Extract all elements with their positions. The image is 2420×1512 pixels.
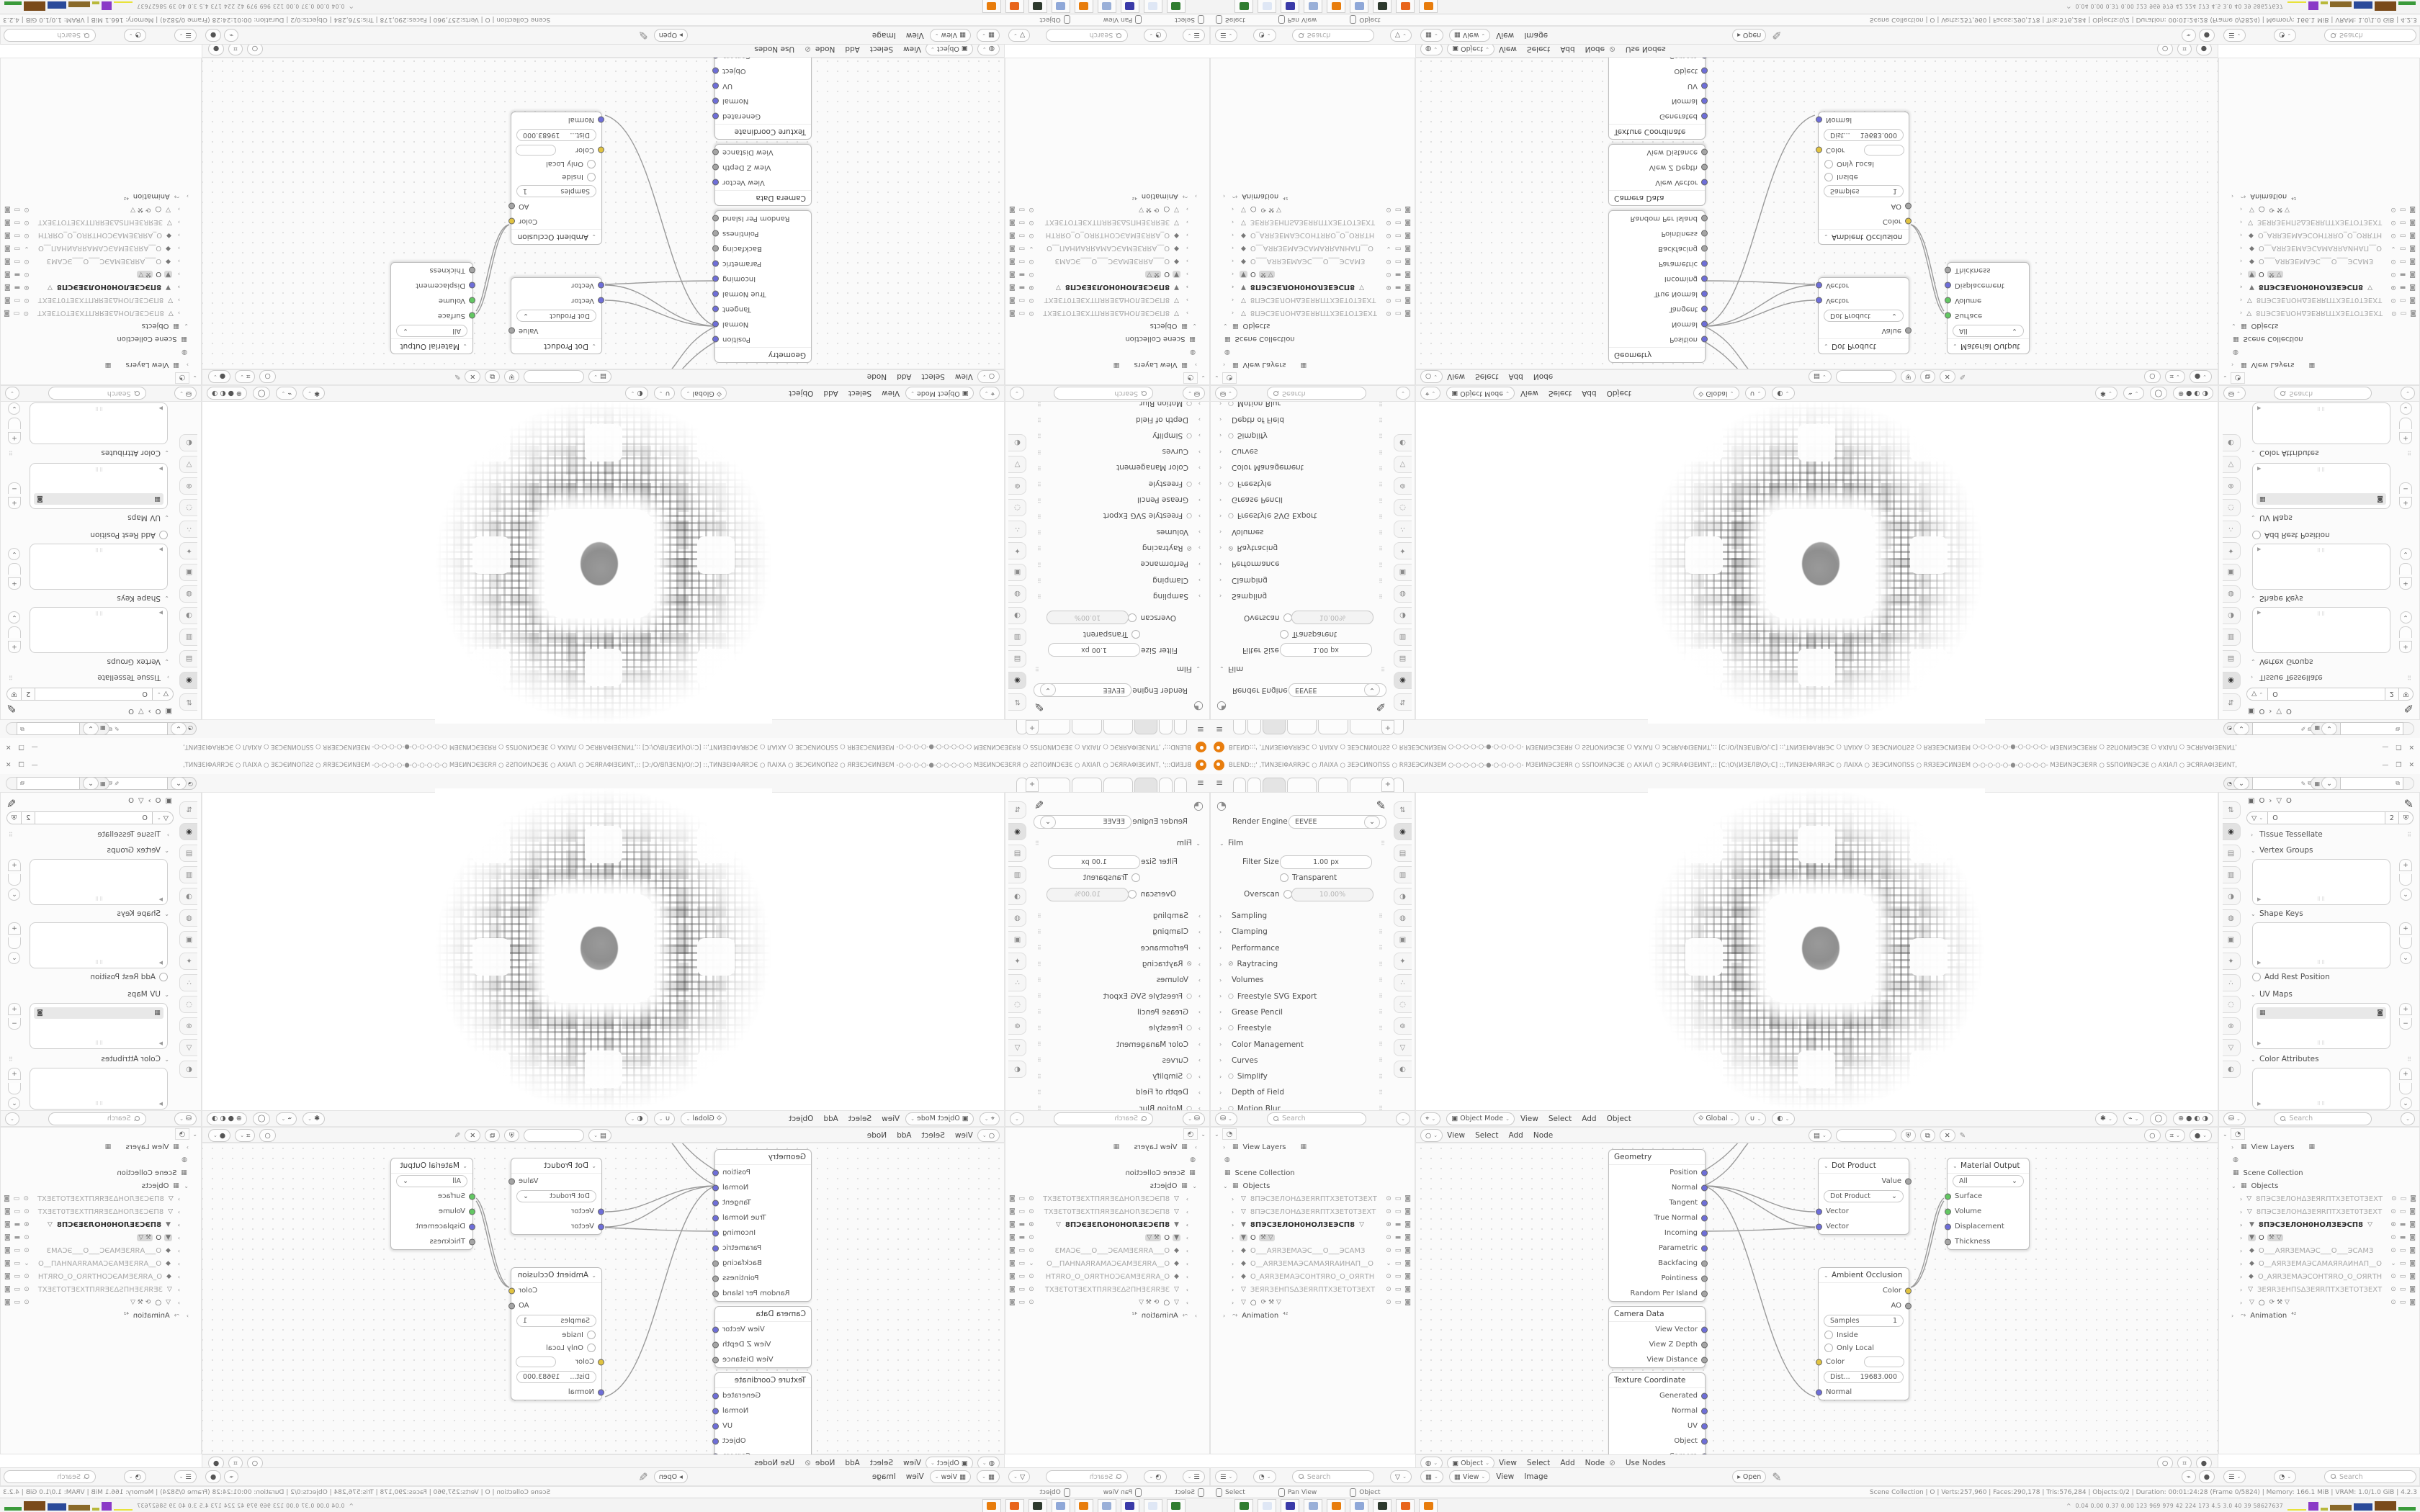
- properties-tab-icon[interactable]: ▥: [1394, 866, 1412, 883]
- menu-item[interactable]: Node: [1585, 1459, 1605, 1467]
- properties-tab-icon[interactable]: ✦: [2223, 953, 2241, 970]
- shading-mode-icon[interactable]: ●: [2186, 1115, 2192, 1122]
- node-input-socket[interactable]: Color: [1819, 143, 1909, 158]
- collapsed-panel-row[interactable]: ›Depth of Field ⠿: [1211, 411, 1391, 427]
- collapsed-panel-row[interactable]: ›Curves ⠿: [1211, 444, 1391, 459]
- view-layers-row[interactable]: ›▦View Layers▦: [2228, 359, 2419, 372]
- material-name-field[interactable]: [1836, 370, 1896, 383]
- socket-dot[interactable]: [1701, 83, 1708, 89]
- taskbar-app-button[interactable]: [1075, 1499, 1093, 1512]
- node-output-socket[interactable]: UV: [1609, 1418, 1705, 1434]
- pin-icon[interactable]: ✎: [454, 373, 460, 381]
- taskbar-app-button[interactable]: [1373, 0, 1391, 14]
- view-layers-row[interactable]: ›▦View Layers▦: [2228, 1140, 2419, 1153]
- hide-eye-icon[interactable]: ⊙: [24, 271, 30, 278]
- workspace-tab[interactable]: [1287, 720, 1317, 734]
- outliner-object-row[interactable]: ›▽ 8ПЭСЗЕЛОНΔЗЕЯRПТХЗЕТ0ТЗЕХТ ⊙▭◙: [1, 294, 184, 307]
- render-visibility-icon[interactable]: ◙: [1009, 297, 1016, 304]
- properties-tab-icon[interactable]: ◍: [1009, 909, 1027, 927]
- properties-tab-icon[interactable]: ▣: [1009, 564, 1027, 581]
- outliner-object-row[interactable]: ›▽ ЗЕЯRЗЕНПSΔЗЕЯRПТХЗЕТОТЗЕХТ ⊙▭◙: [2236, 216, 2419, 229]
- node-output-socket[interactable]: Generated: [1609, 1388, 1705, 1403]
- properties-tab-icon[interactable]: ▣: [180, 564, 198, 581]
- collapsed-panel-row[interactable]: ›Color Management ⠿: [1029, 459, 1209, 475]
- vertex-groups-section[interactable]: ⌄Vertex Groups: [2251, 657, 2313, 666]
- collapsed-panel-row[interactable]: ›Volumes ⠿: [1211, 972, 1391, 988]
- properties-tab-icon[interactable]: ◉: [180, 672, 198, 689]
- world-row[interactable]: ◍: [1005, 1153, 1201, 1166]
- properties-tab-icon[interactable]: ◍: [180, 585, 198, 603]
- viewport-visibility-icon[interactable]: ▭: [14, 232, 21, 239]
- hide-eye-icon[interactable]: ⊙: [2390, 1208, 2396, 1215]
- taskbar-app-button[interactable]: [1121, 0, 1139, 14]
- shape-keys-section[interactable]: ⌄Shape Keys: [117, 594, 169, 603]
- taskbar-app-button[interactable]: [1144, 0, 1162, 14]
- node-output-socket[interactable]: Normal: [1609, 1403, 1705, 1418]
- node-ambient-occlusion[interactable]: ⌄Ambient Occlusion Color AO Samples1 Ins…: [1818, 112, 1909, 245]
- uv-maps-list[interactable]: ▦ ◙ ▶⠿⠿: [2252, 1003, 2390, 1049]
- add-workspace-button[interactable]: +: [1026, 777, 1039, 792]
- workspace-tab[interactable]: [1287, 778, 1317, 792]
- filter-size-field[interactable]: 1.00 px: [1048, 643, 1140, 657]
- header-toggle-button[interactable]: ●: [205, 29, 221, 42]
- node-output-socket[interactable]: Tangent: [1609, 1195, 1705, 1210]
- viewport-visibility-icon[interactable]: ▭: [14, 1273, 21, 1280]
- hide-eye-icon[interactable]: ⊙: [1386, 1234, 1391, 1241]
- viewport-visibility-icon[interactable]: ▭: [2400, 1208, 2406, 1215]
- display-mode-button[interactable]: ☰⌄: [1183, 29, 1205, 42]
- menu-item[interactable]: Add: [1560, 1459, 1574, 1467]
- node-output-socket[interactable]: Position: [1609, 332, 1705, 347]
- shading-mode-switch[interactable]: ⊕●◐◑: [207, 1112, 247, 1125]
- properties-tab-icon[interactable]: ◍: [1394, 585, 1412, 603]
- view-mode-dropdown[interactable]: ▦ View⌄: [930, 1470, 971, 1483]
- socket-dot[interactable]: [1701, 1392, 1708, 1399]
- viewport-visibility-icon[interactable]: ▭: [1395, 258, 1402, 265]
- node-output-socket[interactable]: Value: [511, 1174, 601, 1189]
- outliner-object-row[interactable]: ›▼ O⚒ ▽ ⊙▬◙: [2236, 268, 2419, 281]
- snap-toggle[interactable]: ∪⌄: [1745, 1112, 1767, 1125]
- properties-tab-icon[interactable]: ▣: [1394, 564, 1412, 581]
- remove-button[interactable]: [8, 563, 21, 575]
- node-output-socket[interactable]: Object: [1609, 1434, 1705, 1449]
- world-row[interactable]: ◍: [1219, 346, 1415, 359]
- animation-row[interactable]: ›⤳Animation⁴²: [1219, 1309, 1415, 1322]
- properties-tab-icon[interactable]: ◉: [180, 823, 198, 840]
- collapsed-panel-row[interactable]: ›Performance ⠿: [1029, 940, 1209, 956]
- edit-pencil-icon[interactable]: ✎: [1772, 1470, 1781, 1484]
- properties-tab-icon[interactable]: ▽: [2223, 1039, 2241, 1056]
- view-layers-row[interactable]: ›▦View Layers▦: [1219, 1140, 1415, 1153]
- color-swatch[interactable]: [1864, 145, 1904, 156]
- scene-collection-row[interactable]: ▦Scene Collection: [1219, 1166, 1415, 1179]
- outliner-object-row[interactable]: ›◆ О__АЯRЗЕМАЭСАМАЯRАИНАП__О ⌄▭◙: [2236, 1257, 2419, 1270]
- outliner-object-row[interactable]: ›◆ О__АЯRЗЕМАЭСАМАЯRАИНАП__О ⌄▭◙: [1005, 242, 1192, 255]
- outliner-object-row[interactable]: ›◆ О_АЯRЗЕМАЭСОНТЯRО_О_ОЯRТН ⊙▭◙: [1005, 1270, 1192, 1283]
- node-input-socket[interactable]: Color: [511, 143, 601, 158]
- collapsed-panel-row[interactable]: ›Clamping ⠿: [1029, 572, 1209, 588]
- animation-row[interactable]: ›⤳Animation⁴²: [1219, 190, 1415, 203]
- node-output-socket[interactable]: Value: [511, 323, 601, 338]
- outliner-object-row[interactable]: ›▽ 8ПЭСЗЕЛОНΔЗЕЯRПТХЗЕТОТЗЕХТ ⊙▭◙: [2236, 307, 2419, 320]
- socket-dot[interactable]: [712, 83, 719, 89]
- world-row[interactable]: ◍: [1219, 1153, 1415, 1166]
- properties-tab-icon[interactable]: ◍: [1394, 909, 1412, 927]
- properties-tab-icon[interactable]: ◐: [180, 1061, 198, 1078]
- header-toggle-button[interactable]: ●: [2199, 29, 2215, 42]
- socket-dot[interactable]: [1701, 1260, 1708, 1266]
- collapsed-panel-row[interactable]: ›○Freestyle ⠿: [1029, 1020, 1209, 1036]
- taskbar-app-button[interactable]: [982, 0, 1001, 14]
- viewport-visibility-icon[interactable]: ▭: [2400, 245, 2406, 252]
- menu-item[interactable]: Node: [1533, 372, 1553, 381]
- properties-tab-icon[interactable]: ▣: [180, 931, 198, 948]
- node-output-socket[interactable]: Parametric: [1609, 256, 1705, 271]
- vertex-groups-section[interactable]: ⌄Vertex Groups: [107, 846, 169, 855]
- remove-button[interactable]: [8, 418, 21, 429]
- collapsed-panel-row[interactable]: ›Depth of Field ⠿: [1029, 1084, 1209, 1100]
- outliner-object-row[interactable]: ›◆ О_АЯRЗЕМАЭСОНТЯRО_О_ОЯRТН ⊙▭◙: [2236, 1270, 2419, 1283]
- node-output-socket[interactable]: Random Per Island: [1609, 211, 1705, 226]
- render-visibility-icon[interactable]: ◙: [4, 1195, 10, 1202]
- xray-toggle[interactable]: ○: [2144, 370, 2160, 383]
- socket-dot[interactable]: [1701, 261, 1708, 267]
- add-button[interactable]: +: [8, 497, 21, 509]
- editor-type-button[interactable]: ⌖⌄: [980, 387, 1000, 400]
- editor-type-button[interactable]: ▦⌄: [977, 29, 1000, 42]
- node-input-socket[interactable]: Displacement: [391, 1219, 472, 1234]
- properties-tab-icon[interactable]: ◉: [1009, 823, 1027, 840]
- node-material-output[interactable]: ⌄Material Output All⌄ Surface Volume Dis…: [390, 262, 473, 354]
- display-mode-button[interactable]: ☰⌄: [2223, 29, 2246, 42]
- transparent-checkbox[interactable]: Transparent: [1280, 873, 1337, 882]
- copy-material-button[interactable]: ⧉: [485, 1129, 500, 1142]
- add-button[interactable]: +: [2399, 1003, 2412, 1015]
- search-input[interactable]: Search: [1054, 1112, 1153, 1125]
- render-visibility-icon[interactable]: ◙: [1404, 1273, 1411, 1280]
- socket-dot[interactable]: [598, 282, 604, 289]
- overscan-field[interactable]: 10.00%: [1291, 888, 1373, 901]
- outliner-object-row[interactable]: ›▼ O⚒ ▽ ⊙▬◙: [1005, 1231, 1192, 1244]
- properties-tab-icon[interactable]: ◌: [180, 499, 198, 516]
- menu-item[interactable]: Select: [870, 1459, 893, 1467]
- hide-eye-icon[interactable]: ⊙: [1028, 1221, 1034, 1228]
- outliner-object-row[interactable]: ›▽ 8ПЭСЗЕЛОНΔЗЕЯRПТХЗЕТОТЗЕХТ ⊙▭◙: [1228, 307, 1415, 320]
- properties-tab-icon[interactable]: ⇅: [180, 693, 198, 711]
- socket-dot[interactable]: [712, 261, 719, 267]
- socket-dot[interactable]: [712, 230, 719, 237]
- render-visibility-icon[interactable]: ◙: [1404, 258, 1411, 265]
- socket-dot[interactable]: [1701, 149, 1708, 156]
- properties-tab-icon[interactable]: ▥: [2223, 629, 2241, 646]
- pin-icon[interactable]: ✎: [115, 780, 120, 787]
- render-visibility-icon[interactable]: ◙: [4, 1208, 11, 1215]
- node-output-socket[interactable]: Backfacing: [1609, 241, 1705, 256]
- properties-tab-icon[interactable]: ▣: [2223, 931, 2241, 948]
- hide-eye-icon[interactable]: ⊙: [1028, 1247, 1034, 1254]
- add-workspace-button[interactable]: +: [1026, 720, 1039, 735]
- taskbar-app-button[interactable]: [1098, 1499, 1116, 1512]
- properties-tab-icon[interactable]: ◌: [2223, 996, 2241, 1013]
- render-visibility-icon[interactable]: ◙: [1009, 1299, 1016, 1306]
- socket-dot[interactable]: [712, 1275, 719, 1282]
- proportional-edit-toggle[interactable]: ◐⌄: [625, 1112, 647, 1125]
- render-visibility-icon[interactable]: ◙: [2410, 310, 2416, 317]
- node-output-socket[interactable]: Normal: [715, 1403, 811, 1418]
- workspace-tab[interactable]: [1134, 720, 1157, 734]
- taskbar-app-button[interactable]: [1350, 0, 1368, 14]
- outliner-object-row[interactable]: ›▼ 8ПЭСЗЕЛОН0НОЛЗЕЭСП8▽ ⊙▬◙: [2236, 281, 2419, 294]
- outliner-object-row[interactable]: ›▼ 8ПЭСЗЕЛОН0НОЛЗЕЭСП8▽ ⊙▬◙: [1005, 1218, 1192, 1231]
- shading-mode-icon[interactable]: ◐: [220, 390, 225, 397]
- hide-eye-icon[interactable]: ⊙: [2390, 1299, 2396, 1306]
- socket-dot[interactable]: [1701, 215, 1708, 222]
- minimize-button[interactable]: —: [2382, 744, 2388, 751]
- hide-eye-icon[interactable]: ⊙: [1028, 1273, 1034, 1280]
- render-visibility-icon[interactable]: ◙: [1404, 284, 1411, 291]
- collapsed-panel-row[interactable]: ›Performance ⠿: [1211, 556, 1391, 572]
- hide-eye-icon[interactable]: ⊙: [1028, 271, 1034, 278]
- app-menu-icon[interactable]: ≡: [1197, 778, 1204, 788]
- outliner-object-row[interactable]: ›▽ ○⟳ ⚒ ▽ ⊙▭◙: [1005, 1296, 1192, 1309]
- properties-tab-icon[interactable]: ▽: [2223, 456, 2241, 473]
- node-output-socket[interactable]: Backfacing: [1609, 1256, 1705, 1271]
- socket-dot[interactable]: [712, 1423, 719, 1429]
- viewport-visibility-icon[interactable]: ▭: [1019, 297, 1026, 304]
- render-visibility-icon[interactable]: ◙: [1404, 1234, 1411, 1241]
- unlink-button[interactable]: ✕: [465, 1129, 480, 1142]
- workspace-tab[interactable]: [1247, 778, 1261, 792]
- target-dropdown[interactable]: All⌄: [391, 1174, 472, 1189]
- node-ambient-occlusion[interactable]: ⌄Ambient Occlusion Color AO Samples1 Ins…: [511, 112, 602, 245]
- filter-button[interactable]: ◔⌄: [1253, 1470, 1276, 1483]
- xray-toggle[interactable]: ○: [2144, 1129, 2160, 1142]
- node-output-socket[interactable]: Generated: [1609, 109, 1705, 124]
- collapsed-panel-row[interactable]: ›Performance ⠿: [1029, 556, 1209, 572]
- render-visibility-icon[interactable]: ◙: [1009, 1286, 1016, 1293]
- collapsed-panel-row[interactable]: ›Sampling ⠿: [1029, 908, 1209, 924]
- viewport-visibility-icon[interactable]: ▭: [2400, 297, 2406, 304]
- socket-dot[interactable]: [1701, 336, 1708, 343]
- shading-mode-icon[interactable]: ◐: [2194, 390, 2200, 397]
- options-dropdown[interactable]: ⌄: [5, 387, 19, 400]
- editor-type-button[interactable]: ⛁⌄: [174, 1112, 197, 1125]
- node-input-socket[interactable]: Normal: [511, 112, 601, 127]
- color-swatch[interactable]: [516, 145, 556, 156]
- render-visibility-icon[interactable]: ◙: [2409, 1221, 2416, 1228]
- viewport-visibility-icon[interactable]: ▬: [1395, 1234, 1402, 1241]
- workspace-tab[interactable]: [1233, 720, 1246, 734]
- hide-eye-icon[interactable]: ⊙: [2391, 310, 2397, 317]
- outliner-object-row[interactable]: ›◆ О_АЯRЗЕМАЭСОНТЯRО_О_ОЯRТН ⊙▭◙: [1228, 1270, 1415, 1283]
- hide-eye-icon[interactable]: ⊙: [23, 1195, 29, 1202]
- properties-tab-icon[interactable]: ◌: [1009, 499, 1027, 516]
- user-count-badge[interactable]: 2: [2385, 811, 2399, 824]
- proportional-edit-toggle[interactable]: ◐⌄: [625, 387, 647, 400]
- properties-tab-icon[interactable]: ⊚: [2223, 477, 2241, 495]
- socket-dot[interactable]: [1701, 1356, 1708, 1363]
- snap-grid-toggle[interactable]: ⌗⌄: [2165, 1129, 2185, 1142]
- node-output-socket[interactable]: Pointiness: [715, 1271, 811, 1286]
- node-output-socket[interactable]: True Normal: [1609, 287, 1705, 302]
- filter-icon[interactable]: ◔: [2231, 372, 2245, 384]
- open-image-button[interactable]: ▸ Open: [1732, 1470, 1766, 1483]
- menu-item[interactable]: View: [1447, 372, 1465, 381]
- socket-dot[interactable]: [598, 1389, 604, 1395]
- node-input-socket[interactable]: Normal: [511, 1385, 601, 1400]
- outliner-object-row[interactable]: ›▼ 8ПЭСЗЕЛОН0НОЛЗЕЭСП8▽ ⊙▬◙: [1228, 1218, 1415, 1231]
- filter-funnel-dropdown[interactable]: ▽⌄: [1390, 1470, 1412, 1483]
- user-count-badge[interactable]: 2: [2385, 688, 2399, 701]
- outliner-object-row[interactable]: ›▽ 8ПЭСЗЕЛОНΔЗЕЯRПТХЗЕТ0ТЗЕХТ ⊙▭◙: [1, 1205, 184, 1218]
- hide-eye-icon[interactable]: ⊙: [1028, 310, 1034, 317]
- viewport-visibility-icon[interactable]: ▭: [14, 1208, 21, 1215]
- search-input[interactable]: Search: [2274, 1112, 2372, 1125]
- view-mode-dropdown[interactable]: ▦ View⌄: [1449, 29, 1490, 42]
- view-layers-row[interactable]: ›▦View Layers▦: [1, 359, 192, 372]
- outliner-object-row[interactable]: ›▽ ЗЕЯRЗЕНПSΔЗЕЯRПТХЗЕТОТЗЕХТ ⊙▭◙: [1005, 1283, 1192, 1296]
- viewport-visibility-icon[interactable]: ▭: [14, 1299, 21, 1306]
- material-icon-dropdown[interactable]: ▤⌄: [588, 370, 611, 383]
- hide-eye-icon[interactable]: ⊙: [24, 1208, 30, 1215]
- properties-tab-icon[interactable]: ▣: [2223, 564, 2241, 581]
- properties-tab-icon[interactable]: ∴: [180, 974, 198, 991]
- outliner-object-row[interactable]: ›◆ О__АЯRЗЕМАЭСАМАЯRАИНАП__О ⌄▭◙: [1228, 1257, 1415, 1270]
- collapsed-panel-row[interactable]: ›Curves ⠿: [1029, 444, 1209, 459]
- snap-toggle[interactable]: ∪⌄: [654, 1112, 676, 1125]
- specials-dropdown[interactable]: ⌄: [9, 888, 21, 901]
- node-output-socket[interactable]: Parametric: [1609, 1241, 1705, 1256]
- taskbar-app-button[interactable]: [1396, 1499, 1415, 1512]
- socket-dot[interactable]: [712, 321, 719, 328]
- collapsed-panel-row[interactable]: ›Sampling ⠿: [1211, 908, 1391, 924]
- viewport-visibility-icon[interactable]: ▬: [2400, 284, 2406, 291]
- maximize-button[interactable]: ❐: [2396, 744, 2401, 751]
- properties-tab-icon[interactable]: ✦: [1009, 953, 1027, 970]
- objects-collection-row[interactable]: ⌄▦Objects: [1005, 1179, 1201, 1192]
- outliner-object-row[interactable]: ›▽ ○⟳ ⚒ ▽ ⊙▭◙: [2236, 203, 2419, 216]
- node-input-socket[interactable]: Color: [1819, 1354, 1909, 1369]
- node-output-socket[interactable]: View Vector: [1609, 1322, 1705, 1337]
- taskbar-app-button[interactable]: [1419, 0, 1438, 14]
- node-output-socket[interactable]: Incoming: [715, 271, 811, 287]
- shading-mode-icon[interactable]: ◐: [2194, 1115, 2200, 1122]
- viewport-visibility-icon[interactable]: ▭: [1019, 258, 1026, 265]
- properties-tab-icon[interactable]: ▥: [2223, 866, 2241, 883]
- render-visibility-icon[interactable]: ◙: [2409, 206, 2416, 213]
- minimize-button[interactable]: —: [32, 762, 38, 769]
- properties-tab-icon[interactable]: ◌: [180, 996, 198, 1013]
- taskbar-app-button[interactable]: [1075, 0, 1093, 14]
- open-image-button[interactable]: ▸ Open: [1732, 29, 1766, 42]
- render-visibility-icon[interactable]: ◙: [4, 284, 11, 291]
- properties-tab-icon[interactable]: ∴: [180, 521, 198, 538]
- socket-dot[interactable]: [712, 336, 719, 343]
- overlays-toggle[interactable]: ⌁⌄: [2123, 1112, 2144, 1125]
- search-input[interactable]: Search: [1046, 1470, 1128, 1483]
- copy-material-button[interactable]: ⧉: [485, 370, 500, 383]
- viewport-visibility-icon[interactable]: ▭: [1395, 219, 1402, 226]
- workspace-tab[interactable]: [1263, 778, 1286, 792]
- menu-item[interactable]: Add: [1509, 372, 1523, 381]
- render-visibility-icon[interactable]: ◙: [1404, 206, 1411, 213]
- render-visibility-icon[interactable]: ◙: [4, 1234, 11, 1241]
- remove-button[interactable]: [8, 937, 21, 949]
- node-input-socket[interactable]: Thickness: [1948, 263, 2029, 278]
- socket-dot[interactable]: [508, 328, 515, 334]
- hide-eye-icon[interactable]: ⊙: [2390, 284, 2396, 291]
- hide-eye-icon[interactable]: ⊙: [1386, 1208, 1391, 1215]
- viewport-visibility-icon[interactable]: ▭: [2400, 1273, 2406, 1280]
- viewport-visibility-icon[interactable]: ▬: [1019, 284, 1026, 291]
- properties-tab-icon[interactable]: ◑: [2223, 607, 2241, 624]
- filter-icon[interactable]: ◔: [1183, 372, 1198, 384]
- socket-dot[interactable]: [1701, 1275, 1708, 1282]
- edit-pencil-icon[interactable]: ✎: [638, 1470, 647, 1484]
- hide-eye-icon[interactable]: ⊙: [24, 232, 30, 239]
- add-button[interactable]: +: [8, 1003, 21, 1015]
- viewport-visibility-icon[interactable]: ▬: [14, 271, 21, 278]
- tray-expander-icon[interactable]: ^: [349, 1503, 354, 1509]
- id-selector-viewlayer[interactable]: ▦⌄ ⧉: [6, 722, 109, 735]
- socket-dot[interactable]: [1701, 1200, 1708, 1206]
- shader-node-canvas[interactable]: Geometry Position Normal Tangent True No…: [202, 58, 1005, 369]
- copy-material-button[interactable]: ⧉: [1920, 1129, 1935, 1142]
- unlink-button[interactable]: ✕: [1940, 1129, 1955, 1142]
- hide-eye-icon[interactable]: ⊙: [1386, 206, 1391, 213]
- center-sphere-object[interactable]: [1802, 927, 1839, 970]
- filter-icon[interactable]: ◔: [1222, 1128, 1237, 1140]
- socket-dot[interactable]: [712, 1245, 719, 1251]
- render-visibility-icon[interactable]: ◙: [1404, 297, 1411, 304]
- overlay-toggle[interactable]: ●⌄: [208, 1129, 230, 1142]
- viewport-visibility-icon[interactable]: ▭: [2400, 1286, 2406, 1293]
- add-button[interactable]: +: [2399, 922, 2412, 935]
- menu-item[interactable]: View: [903, 45, 921, 53]
- node-input-socket[interactable]: Vector: [1819, 1204, 1909, 1219]
- render-visibility-icon[interactable]: ◙: [4, 206, 11, 213]
- pin-icon[interactable]: ✎: [1034, 798, 1044, 812]
- pin-icon[interactable]: ✎: [6, 701, 16, 715]
- node-output-socket[interactable]: View Distance: [715, 145, 811, 160]
- distance-field[interactable]: Dist...19683.000: [511, 127, 601, 143]
- outliner-object-row[interactable]: ›▽ ЗЕЯRЗЕНПSΔЗЕЯRПТХЗЕТОТЗЕХТ ⊙▭◙: [1228, 1283, 1415, 1296]
- editor-type-button[interactable]: ○⌄: [1420, 1129, 1443, 1142]
- user-count-badge[interactable]: 2: [21, 811, 35, 824]
- outliner-object-row[interactable]: ›▼ O⚒ ▽ ⊙▬◙: [1228, 1231, 1415, 1244]
- mode-dropdown[interactable]: ▣ Object Mode⌄: [1446, 1112, 1515, 1125]
- viewport-visibility-icon[interactable]: ▭: [2400, 258, 2406, 265]
- node-input-socket[interactable]: Normal: [1819, 1385, 1909, 1400]
- node-output-socket[interactable]: Random Per Island: [1609, 1286, 1705, 1301]
- tissue-tessellate-section[interactable]: ›Tissue Tessellate: [2251, 830, 2323, 839]
- collapsed-panel-row[interactable]: ›Sampling ⠿: [1029, 588, 1209, 604]
- menu-item[interactable]: Add: [1560, 45, 1574, 53]
- color-attributes-section[interactable]: ⌄Color Attributes: [2251, 1055, 2319, 1063]
- view-layers-row[interactable]: ›▦View Layers▦: [1005, 359, 1201, 372]
- shader-node-canvas[interactable]: Geometry Position Normal Tangent True No…: [1415, 1143, 2218, 1454]
- fake-user-shield-button[interactable]: ⛨: [2399, 688, 2414, 701]
- collapsed-panel-row[interactable]: ›Curves ⠿: [1211, 1053, 1391, 1068]
- objects-collection-row[interactable]: ⌄▦Objects: [2228, 320, 2419, 333]
- node-output-socket[interactable]: Color: [1819, 214, 1909, 229]
- node-input-socket[interactable]: Vector: [511, 278, 601, 293]
- node-output-socket[interactable]: View Z Depth: [715, 1337, 811, 1352]
- editor-type-button[interactable]: ▦⌄: [1420, 1470, 1443, 1483]
- color-swatch[interactable]: [516, 1356, 556, 1367]
- socket-dot[interactable]: [1816, 1389, 1822, 1395]
- display-mode-button[interactable]: ☰⌄: [1215, 29, 1237, 42]
